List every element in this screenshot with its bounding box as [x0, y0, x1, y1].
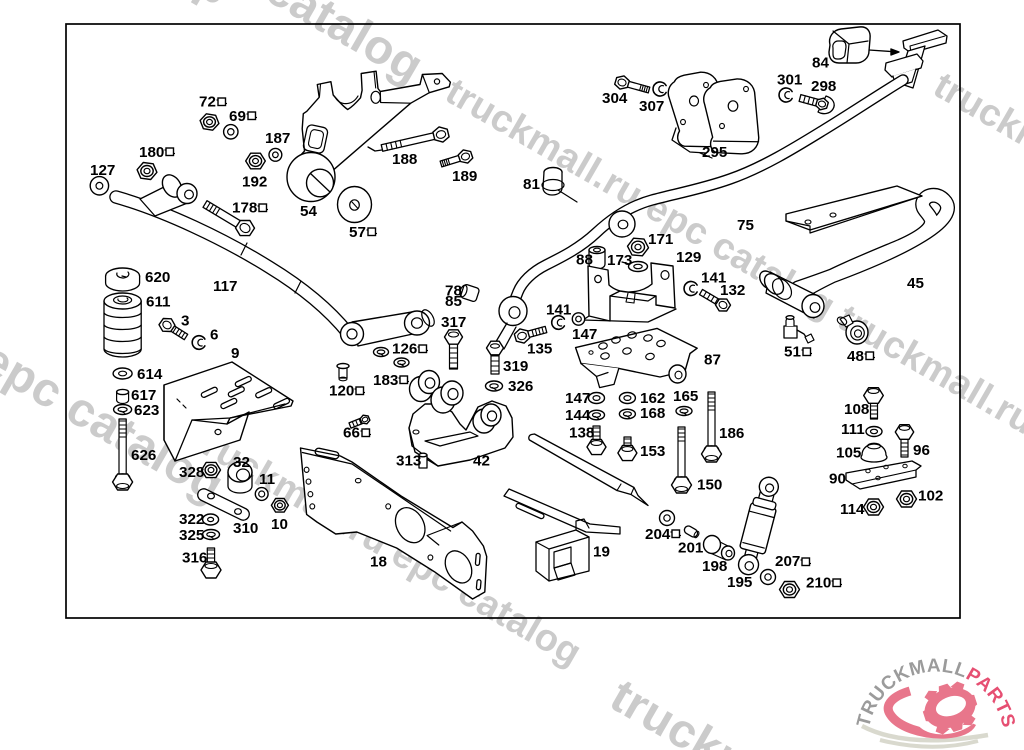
svg-text:328: 328: [179, 464, 204, 481]
svg-text:192: 192: [242, 174, 267, 191]
svg-text:153: 153: [640, 443, 665, 460]
svg-text:96: 96: [913, 442, 930, 459]
svg-text:114: 114: [840, 501, 865, 518]
svg-text:317: 317: [441, 314, 466, 331]
svg-text:42: 42: [473, 453, 490, 470]
svg-text:325: 325: [179, 527, 205, 544]
svg-text:210: 210: [806, 575, 831, 592]
svg-text:178: 178: [232, 200, 257, 217]
svg-text:304: 304: [602, 90, 628, 107]
svg-text:207: 207: [775, 553, 800, 570]
svg-text:165: 165: [673, 388, 699, 405]
svg-text:9: 9: [231, 345, 239, 362]
svg-text:81: 81: [523, 176, 540, 193]
svg-text:171: 171: [648, 231, 674, 248]
svg-text:90: 90: [829, 471, 846, 488]
svg-text:18: 18: [370, 554, 387, 571]
svg-text:307: 307: [639, 98, 664, 115]
svg-text:54: 54: [300, 203, 317, 220]
svg-text:195: 195: [727, 574, 753, 591]
svg-text:611: 611: [146, 294, 171, 311]
svg-text:188: 188: [392, 151, 417, 168]
svg-text:57: 57: [349, 224, 366, 241]
svg-text:111: 111: [841, 421, 865, 438]
svg-text:48: 48: [847, 348, 864, 365]
svg-text:19: 19: [593, 544, 610, 561]
svg-text:183: 183: [373, 372, 398, 389]
svg-text:313: 313: [396, 453, 421, 470]
svg-text:10: 10: [271, 516, 288, 533]
svg-text:316: 316: [182, 550, 207, 567]
svg-text:69: 69: [229, 108, 246, 125]
svg-text:144: 144: [565, 407, 591, 424]
svg-text:88: 88: [576, 252, 593, 269]
svg-text:66: 66: [343, 425, 360, 442]
svg-text:72: 72: [199, 94, 216, 111]
svg-text:126: 126: [392, 341, 417, 358]
svg-text:45: 45: [907, 275, 924, 292]
svg-text:204: 204: [645, 526, 671, 543]
svg-text:186: 186: [719, 425, 744, 442]
svg-text:150: 150: [697, 477, 722, 494]
svg-text:51: 51: [784, 344, 801, 361]
svg-text:108: 108: [844, 401, 869, 418]
svg-text:310: 310: [233, 520, 258, 537]
svg-text:75: 75: [737, 217, 754, 234]
svg-text:135: 135: [527, 341, 553, 358]
svg-text:301: 301: [777, 72, 803, 89]
svg-text:298: 298: [811, 78, 836, 95]
svg-text:187: 187: [265, 130, 290, 147]
svg-text:620: 620: [145, 269, 170, 286]
svg-text:189: 189: [452, 168, 477, 185]
svg-text:147: 147: [572, 326, 597, 343]
svg-text:614: 614: [137, 366, 163, 383]
svg-text:6: 6: [210, 327, 218, 344]
svg-text:117: 117: [213, 278, 238, 295]
svg-text:129: 129: [676, 249, 701, 266]
svg-text:105: 105: [836, 445, 862, 462]
svg-text:32: 32: [233, 454, 250, 471]
svg-text:84: 84: [812, 55, 829, 72]
svg-text:11: 11: [259, 471, 276, 488]
svg-text:198: 198: [702, 558, 727, 575]
svg-text:85: 85: [445, 293, 462, 310]
svg-text:87: 87: [704, 352, 721, 369]
svg-text:173: 173: [607, 252, 632, 269]
svg-text:132: 132: [720, 282, 745, 299]
svg-text:147: 147: [565, 390, 590, 407]
svg-text:326: 326: [508, 378, 533, 395]
svg-text:626: 626: [131, 447, 156, 464]
svg-text:168: 168: [640, 405, 665, 422]
svg-text:201: 201: [678, 540, 704, 557]
svg-text:127: 127: [90, 162, 115, 179]
svg-text:120: 120: [329, 383, 354, 400]
svg-text:295: 295: [702, 144, 728, 161]
svg-text:319: 319: [503, 358, 528, 375]
svg-text:180: 180: [139, 144, 164, 161]
svg-text:322: 322: [179, 511, 204, 528]
svg-text:3: 3: [181, 313, 189, 330]
svg-text:141: 141: [546, 302, 572, 319]
svg-text:102: 102: [918, 488, 943, 505]
svg-text:623: 623: [134, 402, 159, 419]
svg-text:138: 138: [569, 425, 594, 442]
